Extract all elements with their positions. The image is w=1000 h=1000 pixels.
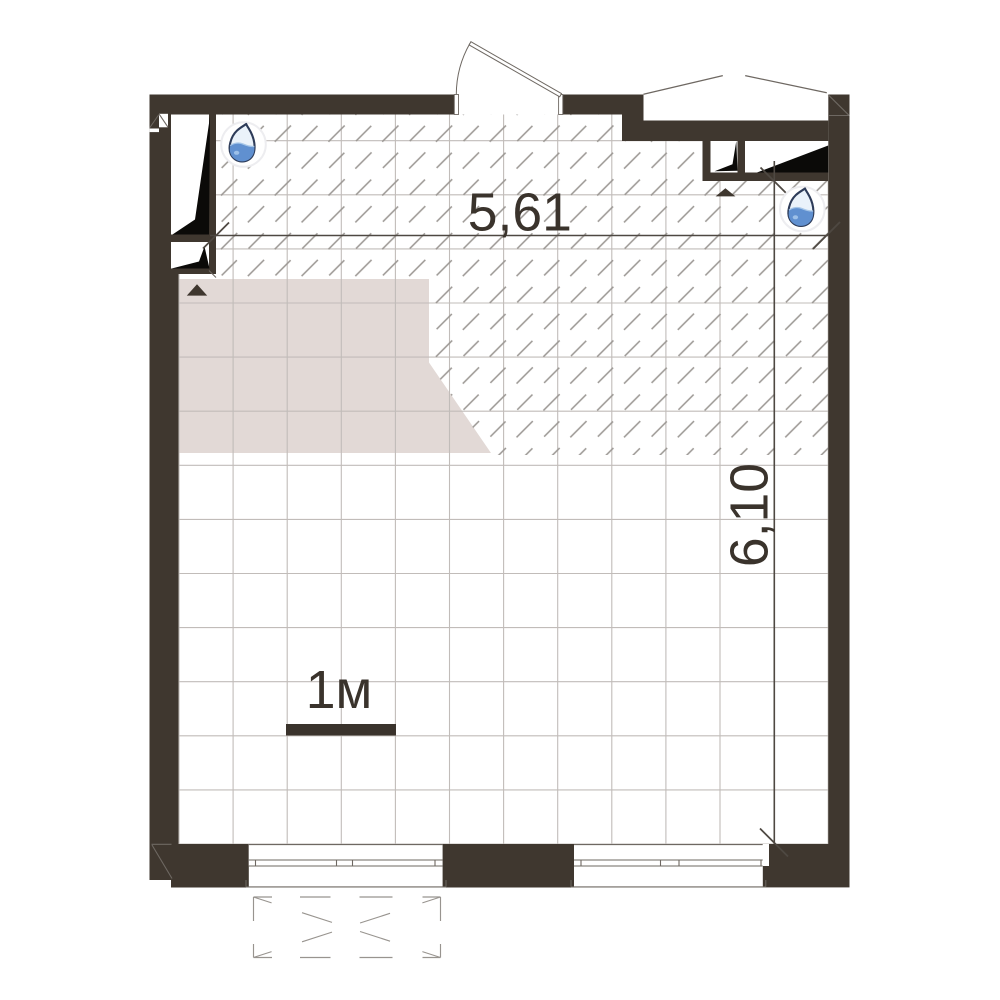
svg-text:1м: 1м	[306, 661, 373, 720]
svg-text:6,10: 6,10	[721, 463, 780, 567]
svg-text:5,61: 5,61	[468, 183, 572, 242]
